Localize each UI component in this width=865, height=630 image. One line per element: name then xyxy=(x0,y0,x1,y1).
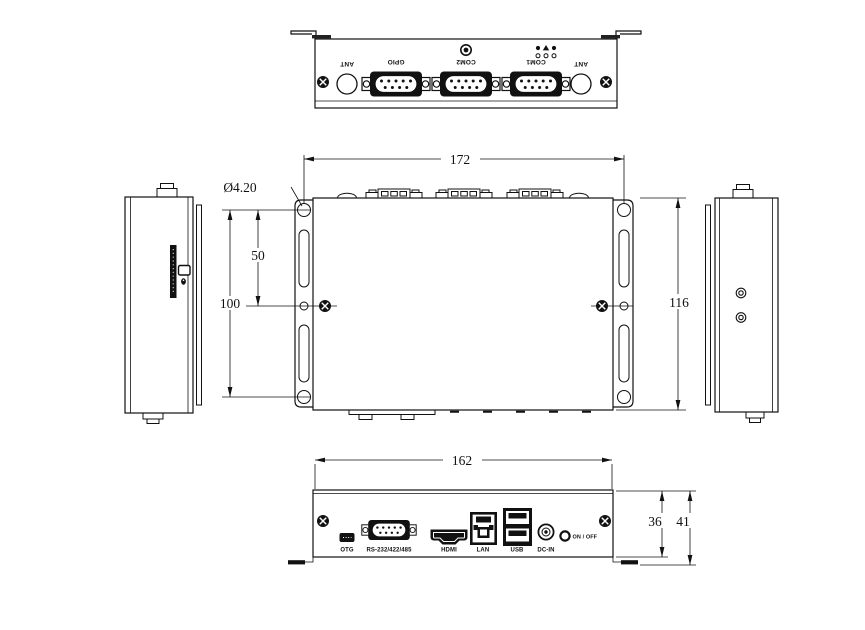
dim-text-41: 41 xyxy=(676,514,690,529)
db9-serial-connector xyxy=(362,520,416,540)
ant-top-profile xyxy=(570,193,589,198)
db9-gpio-connector xyxy=(362,72,430,97)
serial-label: RS-232/422/485 xyxy=(366,548,412,554)
bracket-left xyxy=(295,200,313,407)
com1-label: COM1 xyxy=(526,58,546,65)
dim-text-162: 162 xyxy=(452,453,472,468)
front-view: OTG RS-232/422/485 HDMI LAN USB DC-IN ON… xyxy=(288,490,638,564)
dcin-label: DC-IN xyxy=(537,548,554,554)
technical-drawing-page: ANT GPIO COM2 COM1 ANT xyxy=(0,0,865,630)
top-connector-profile xyxy=(157,184,177,198)
foot-right xyxy=(613,557,638,564)
dim-text-36: 36 xyxy=(648,514,662,529)
db9-com2-connector xyxy=(432,72,500,97)
db9-top-profile xyxy=(507,189,563,198)
front-panel-outline xyxy=(313,490,613,557)
side-label-strip xyxy=(170,245,177,298)
usb-ports xyxy=(503,508,532,546)
gpio-label: GPIO xyxy=(387,58,404,65)
hdmi-label: HDMI xyxy=(441,548,457,554)
otg-port xyxy=(340,533,355,542)
bracket-edge xyxy=(197,205,202,405)
lan-port xyxy=(470,512,497,545)
db9-com1-connector xyxy=(502,72,570,97)
dim-text-172: 172 xyxy=(450,152,470,167)
bracket-edge xyxy=(706,205,711,405)
left-body-outline xyxy=(125,197,193,413)
dim-front-width: 162 xyxy=(315,452,612,489)
right-side-view xyxy=(706,185,779,423)
dim-text-116: 116 xyxy=(669,295,689,310)
dim-text-hole: Ø4.20 xyxy=(223,180,257,195)
bottom-connector-profile xyxy=(746,412,764,423)
usb-label: USB xyxy=(511,548,525,554)
dim-hole-diameter: Ø4.20 xyxy=(223,180,302,206)
bottom-connector-profile xyxy=(143,413,163,424)
ant-right-label: ANT xyxy=(574,60,588,67)
mount-tab-left xyxy=(291,31,331,39)
plan-view xyxy=(240,189,633,420)
bracket-right xyxy=(613,200,633,407)
db9-top-profile xyxy=(436,189,492,198)
drawing-canvas: ANT GPIO COM2 COM1 ANT xyxy=(0,0,865,630)
dim-hole-pitch-half: 50 xyxy=(247,210,269,306)
sim-slot xyxy=(179,266,191,276)
side-button xyxy=(181,278,186,284)
ant-connector-right xyxy=(571,74,591,94)
foot-left xyxy=(288,557,313,564)
mount-tab-right xyxy=(601,31,641,39)
body-outline xyxy=(313,198,613,410)
dim-text-100: 100 xyxy=(220,296,241,311)
lan-label: LAN xyxy=(477,548,490,554)
rear-view: ANT GPIO COM2 COM1 ANT xyxy=(291,31,641,108)
top-connector-profile xyxy=(733,185,753,199)
otg-label: OTG xyxy=(340,548,354,554)
db9-top-profile xyxy=(366,189,422,198)
right-body-outline xyxy=(715,198,778,412)
power-label: ON / OFF xyxy=(573,535,598,541)
led-dot xyxy=(536,46,540,50)
ant-left-label: ANT xyxy=(340,60,354,67)
bottom-connector-profile xyxy=(349,410,435,420)
dim-text-50: 50 xyxy=(251,248,265,263)
com2-label: COM2 xyxy=(456,58,476,65)
ant-top-profile xyxy=(338,193,357,198)
left-side-view xyxy=(125,184,202,424)
led-dot xyxy=(552,46,556,50)
ant-connector-left xyxy=(337,74,357,94)
